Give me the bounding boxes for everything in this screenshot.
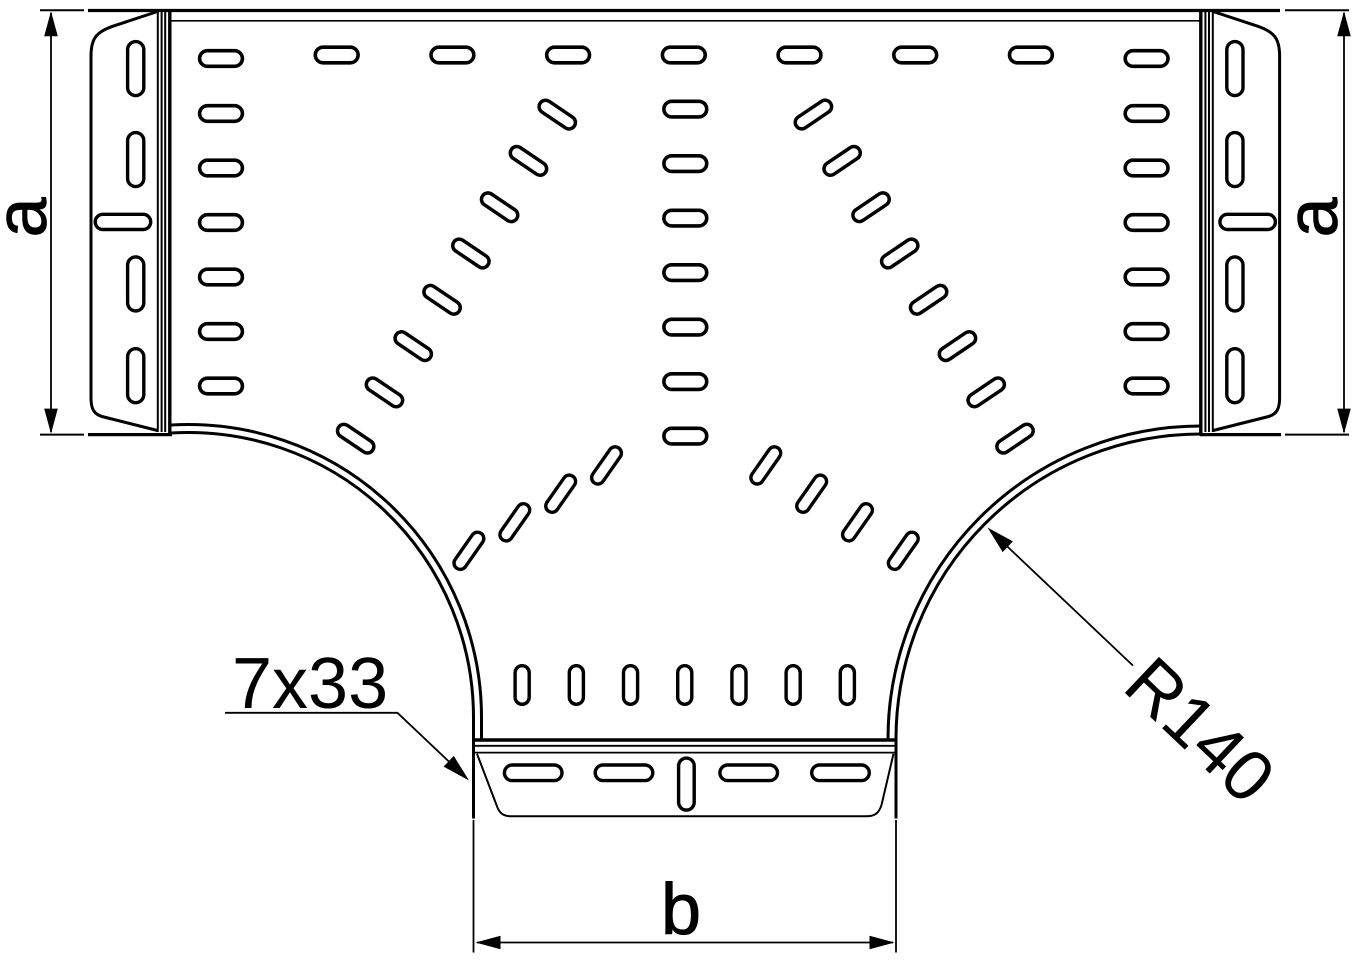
svg-text:a: a — [1273, 197, 1353, 238]
svg-text:b: b — [661, 870, 701, 950]
svg-text:a: a — [0, 197, 62, 238]
